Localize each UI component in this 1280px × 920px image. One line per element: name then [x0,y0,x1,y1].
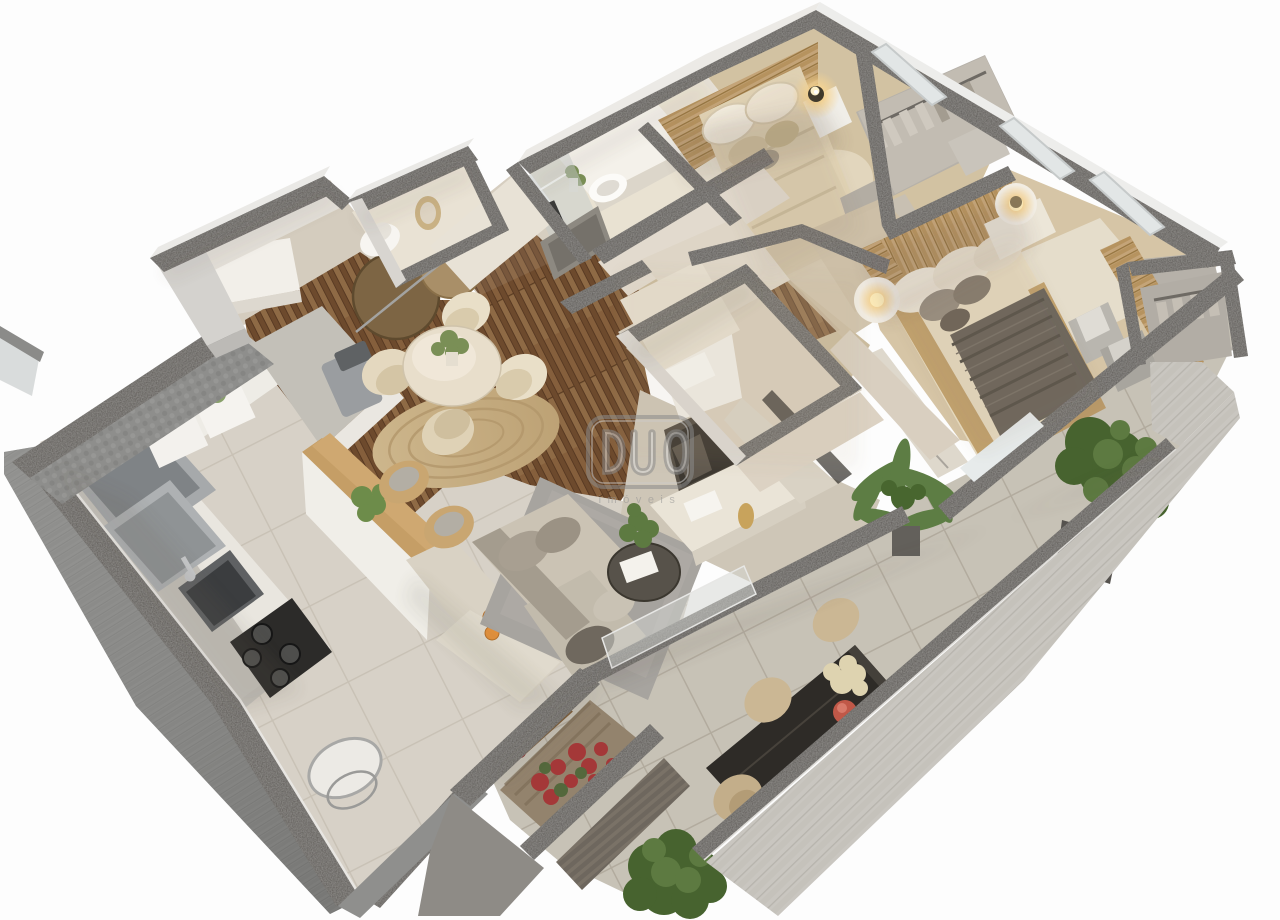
svg-text:imóveis: imóveis [599,494,682,506]
